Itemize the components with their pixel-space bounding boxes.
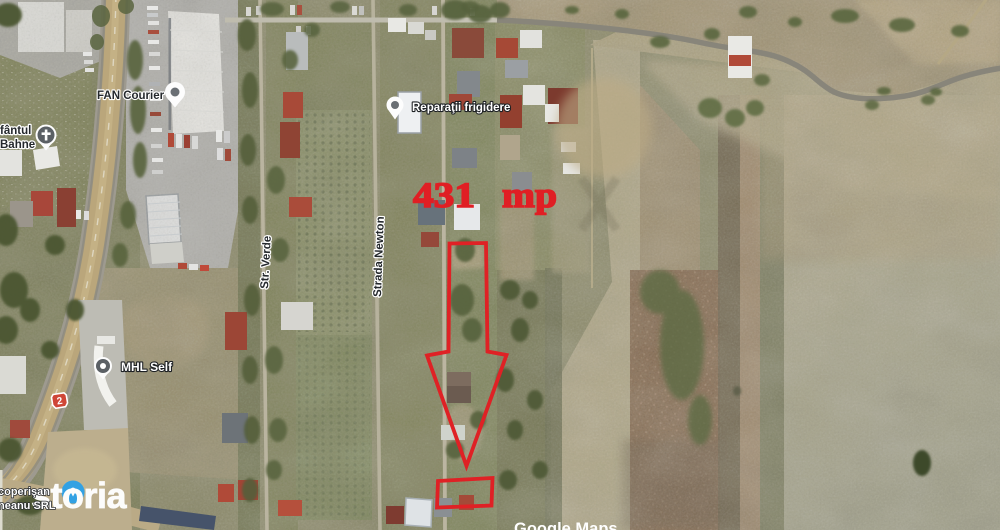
svg-text:MHL Self: MHL Self: [121, 360, 173, 374]
svg-text:Reparaţii frigidere: Reparaţii frigidere: [412, 102, 510, 114]
svg-text:neanu SRL: neanu SRL: [0, 500, 56, 512]
svg-text:Bahne: Bahne: [0, 139, 35, 151]
svg-text:431: 431: [413, 175, 475, 215]
svg-text:mp: mp: [502, 175, 557, 215]
svg-text:coperişan: coperişan: [0, 486, 50, 498]
svg-text:FAN Courier: FAN Courier: [97, 90, 165, 102]
svg-text:Google Maps: Google Maps: [514, 520, 618, 530]
svg-text:fântul: fântul: [0, 125, 31, 137]
